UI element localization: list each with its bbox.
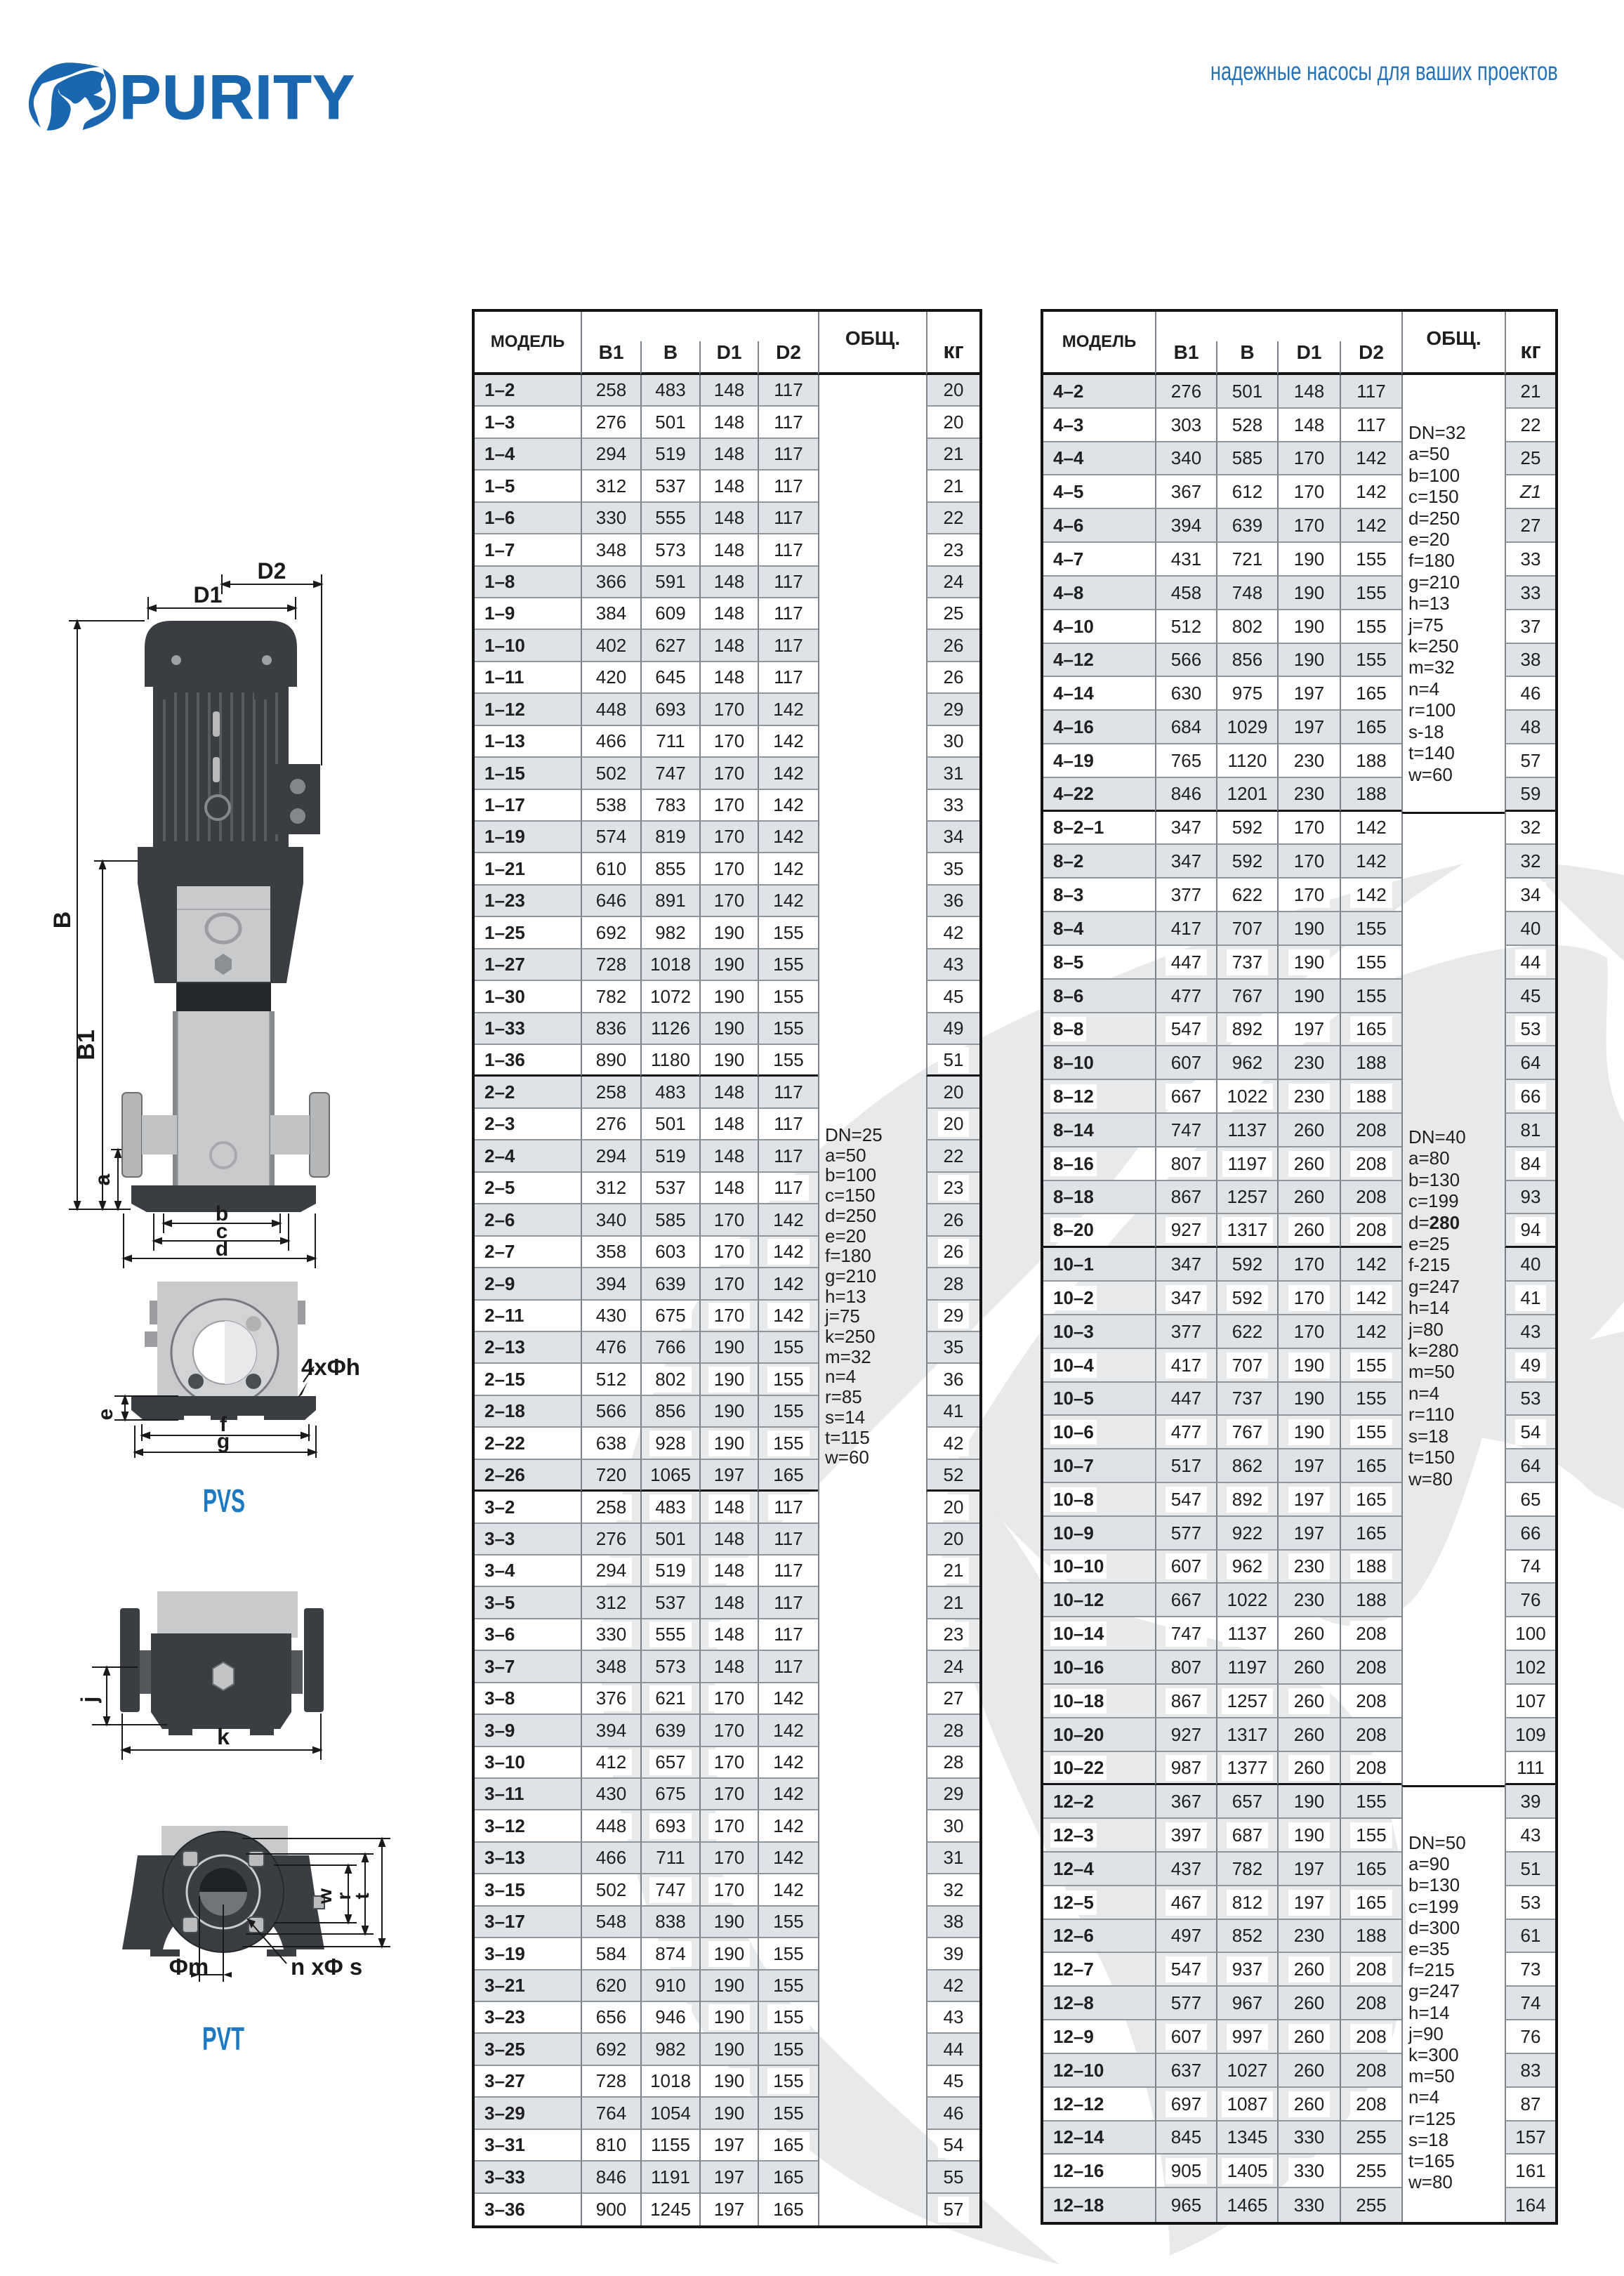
- svg-text:g: g: [217, 1430, 230, 1453]
- svg-text:d: d: [216, 1237, 228, 1261]
- svg-text:e: e: [94, 1409, 117, 1421]
- svg-text:B: B: [49, 912, 76, 929]
- svg-text:t: t: [351, 1893, 373, 1899]
- svg-text:D1: D1: [194, 582, 223, 607]
- svg-text:PVT: PVT: [202, 2020, 244, 2057]
- svg-text:D2: D2: [258, 558, 286, 584]
- svg-text:k: k: [217, 1724, 230, 1749]
- svg-text:j: j: [77, 1697, 102, 1704]
- svg-text:a: a: [91, 1173, 114, 1185]
- svg-text:4xΦh: 4xΦh: [301, 1354, 360, 1380]
- svg-text:Φm: Φm: [169, 1954, 209, 1980]
- svg-text:n xΦ s: n xΦ s: [291, 1954, 362, 1980]
- svg-text:B1: B1: [73, 1030, 100, 1060]
- svg-text:PVS: PVS: [203, 1482, 245, 1519]
